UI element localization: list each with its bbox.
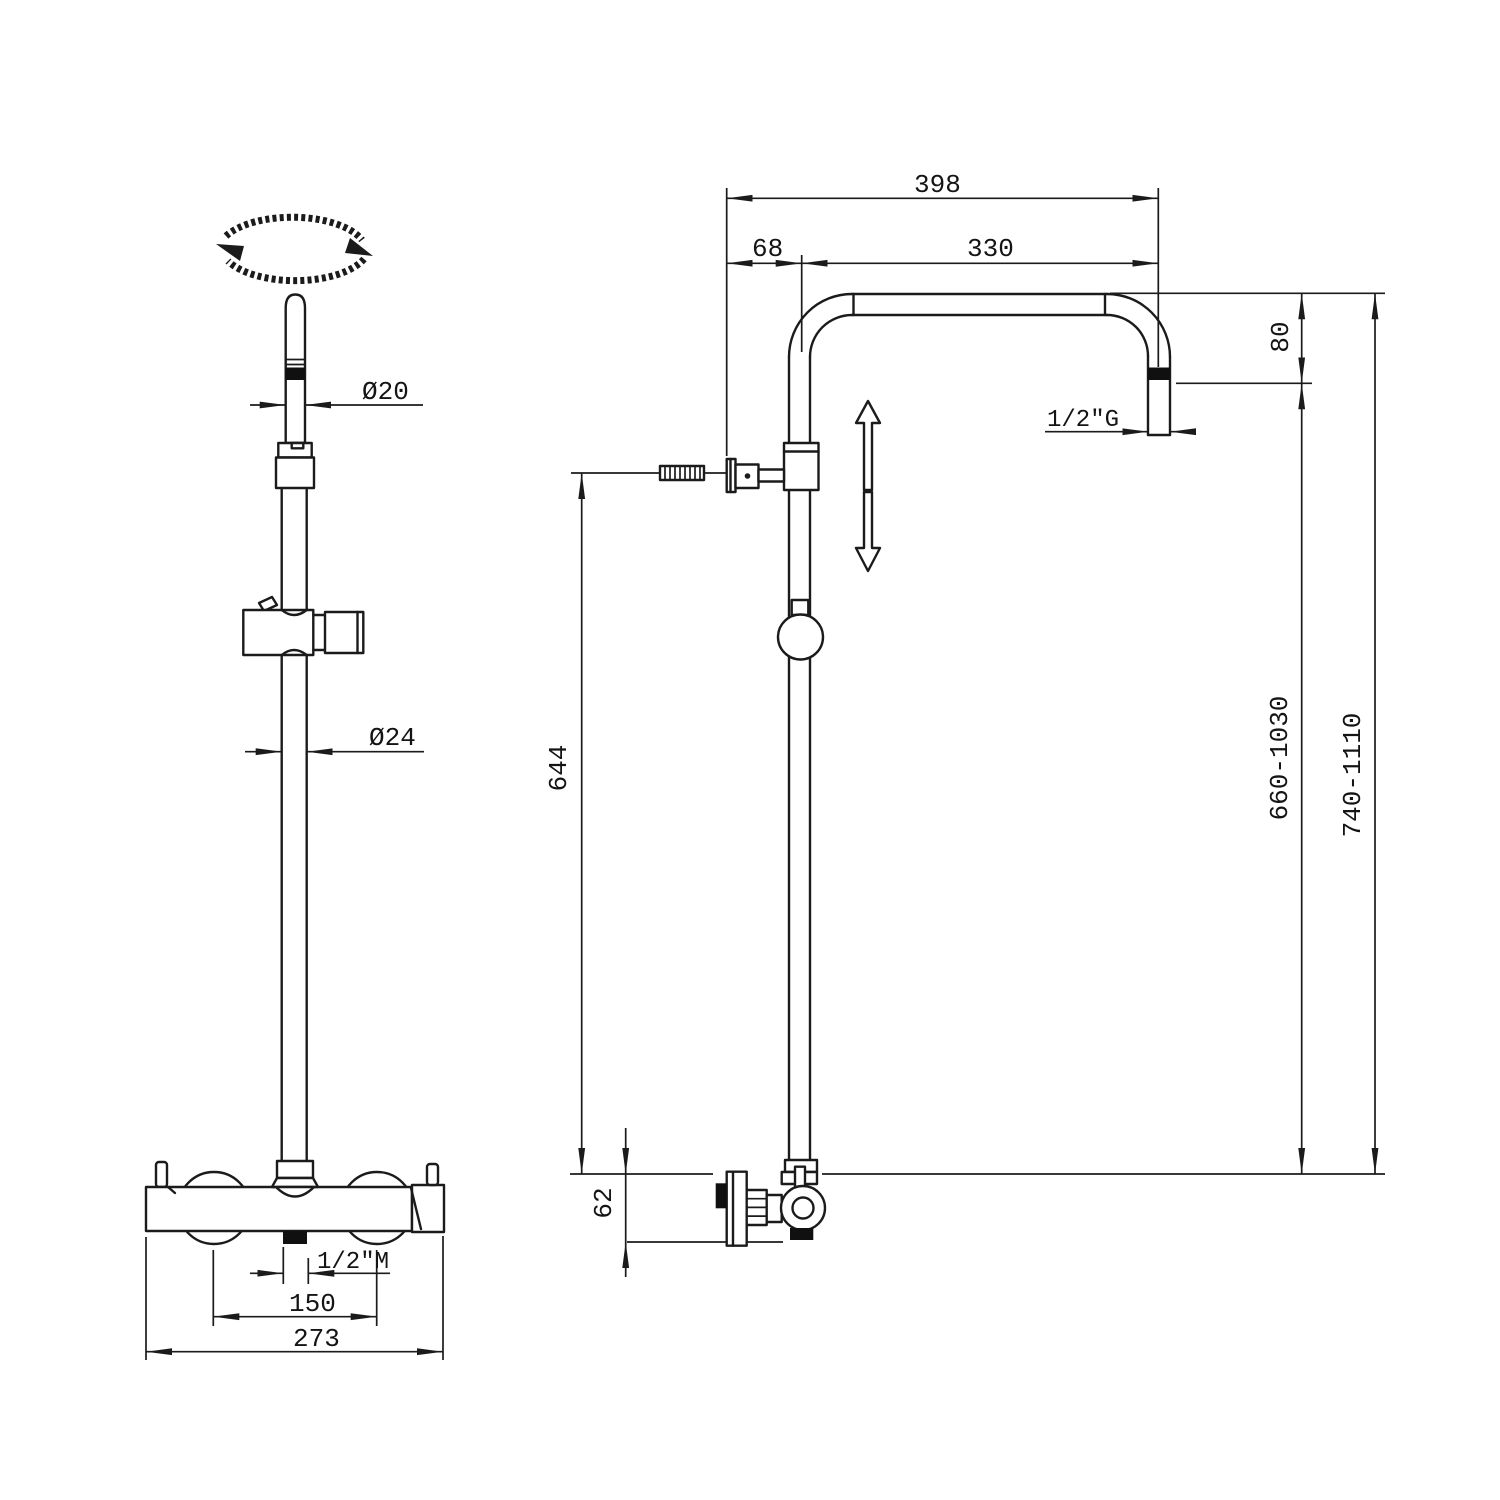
valve-mid-piece: [767, 1195, 782, 1222]
wand-joint-lower: [276, 458, 314, 489]
slider-ring-knob: [778, 615, 823, 660]
bottom-outlet-nut: [283, 1231, 307, 1244]
dim-outlet-thread: 1/2"G: [1045, 407, 1194, 434]
technical-drawing-canvas: Ø20 Ø24 1/2"M 150 273: [0, 0, 1500, 1500]
dim-label: Ø20: [362, 377, 409, 407]
dim-label-inlet-thread: 1/2"M: [317, 1249, 389, 1276]
dim-label: Ø24: [369, 723, 416, 753]
dim-label: 62: [589, 1187, 619, 1218]
dim-label: 740-1110: [1338, 713, 1368, 838]
valve-body: [146, 1187, 412, 1231]
slider-ring-tab: [792, 600, 809, 615]
slide-adjust-arrows: [856, 401, 880, 571]
slider-body: [243, 610, 313, 655]
dim-label: 644: [544, 745, 574, 792]
bracket-stem: [759, 470, 785, 482]
valve-bottom-nut: [790, 1228, 813, 1240]
right-handle-stem: [427, 1164, 438, 1185]
dim-label: 660-1030: [1265, 696, 1295, 821]
dim-label-inlet-spacing: 150: [289, 1289, 336, 1319]
head-connector-band: [1148, 368, 1170, 381]
dim-arm-length: 330: [802, 234, 1159, 264]
dim-overall-range: 740-1110: [1338, 293, 1375, 1174]
dim-label: 80: [1266, 321, 1296, 352]
valve-top-slot: [795, 1167, 805, 1187]
dim-label-valve-width: 273: [293, 1324, 340, 1354]
shower-column-drawing: Ø20 Ø24 1/2"M 150 273: [0, 0, 1500, 1500]
side-view: 398 68 330 1/2"G 80 660-1030 7: [544, 170, 1385, 1277]
dim-label: 1/2"G: [1047, 407, 1119, 434]
riser-flare: [272, 1178, 318, 1187]
dim-label: 330: [967, 234, 1014, 264]
dim-label: 398: [914, 170, 961, 200]
wall-bracket: [660, 443, 819, 492]
front-view: Ø20 Ø24 1/2"M 150 273: [146, 217, 444, 1360]
dim-column-range: 660-1030: [1265, 383, 1302, 1174]
left-handle-stem: [156, 1162, 167, 1187]
wand-grip-band: [286, 368, 305, 381]
column-sleeve: [784, 443, 819, 490]
dim-bracket-height: 644: [544, 473, 582, 1174]
dim-arm-offset: 68: [727, 234, 802, 264]
rail-tube: [282, 488, 307, 1161]
riser-nut: [277, 1161, 313, 1178]
slider-ring-side: [778, 600, 823, 660]
bracket-screw: [660, 466, 704, 480]
dim-valve-bottom: 1/2"M 150 273: [146, 1236, 443, 1360]
slider-holder: [243, 597, 363, 655]
dim-rail-diameter: Ø24: [245, 723, 424, 753]
valve-side-knob-hub: [793, 1198, 814, 1219]
slide-down-arrow-icon: [856, 492, 880, 571]
valve-side-knob-left: [716, 1183, 727, 1208]
wand-joint-notch: [292, 443, 304, 448]
dim-head-drop: 80: [1266, 293, 1302, 383]
dim-handle-diameter: Ø20: [250, 377, 423, 407]
valve-escutcheon: [727, 1172, 747, 1246]
valve-side: [716, 1160, 825, 1246]
rotation-arrow-icon: [216, 217, 373, 280]
bracket-screw-dot: [745, 473, 751, 479]
dim-valve-offset: 62: [589, 1128, 626, 1277]
valve-front: [146, 1161, 444, 1244]
dim-overall-width: 398: [727, 170, 1159, 200]
dim-label: 68: [752, 234, 783, 264]
slide-up-arrow-icon: [856, 401, 880, 490]
